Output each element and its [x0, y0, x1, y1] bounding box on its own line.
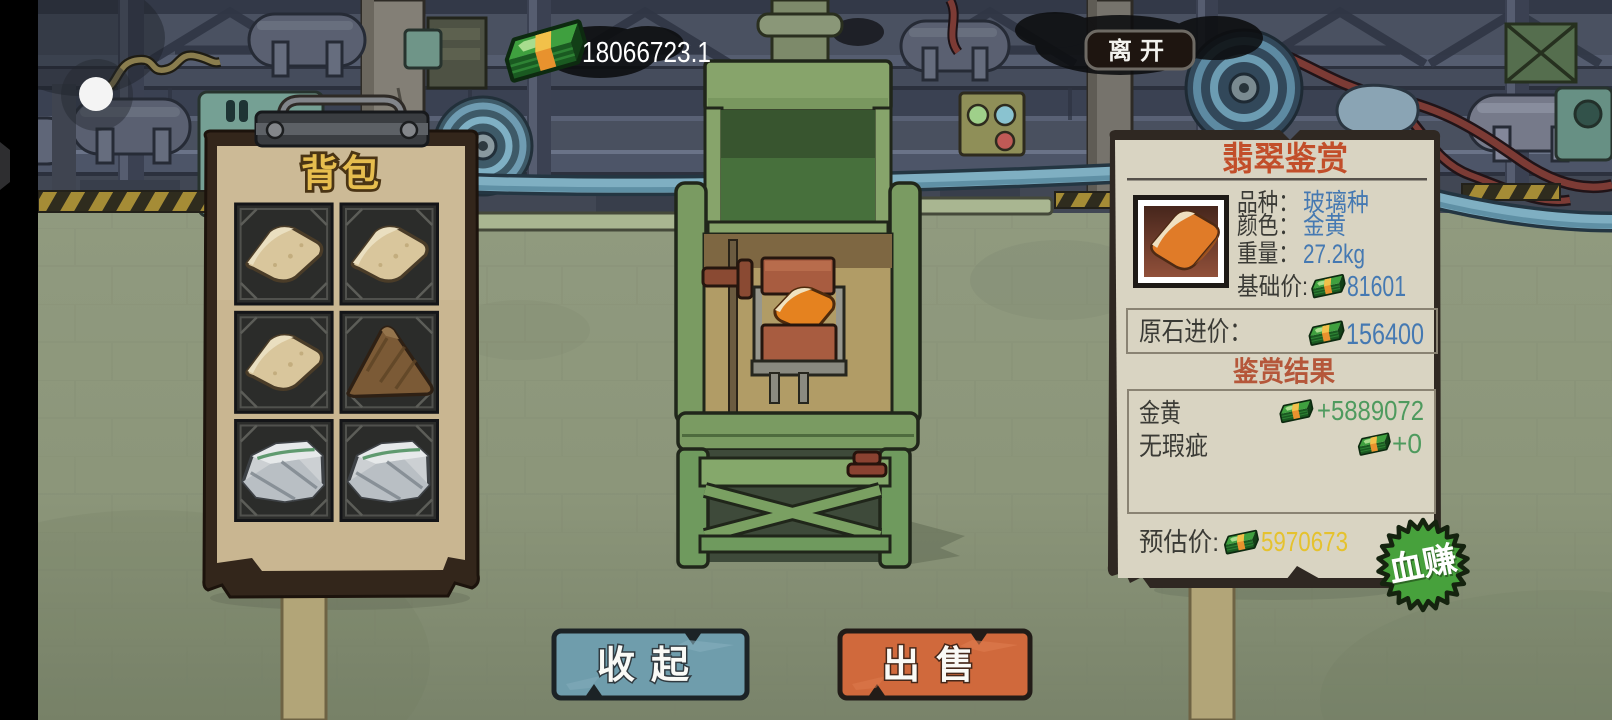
svg-text:18066723.1: 18066723.1: [582, 37, 711, 69]
svg-text:无瑕疵: 无瑕疵: [1139, 431, 1208, 461]
svg-text:重量：: 重量：: [1237, 240, 1299, 268]
svg-text:+5889072: +5889072: [1317, 395, 1424, 426]
svg-text:翡翠鉴赏: 翡翠鉴赏: [1222, 140, 1348, 177]
svg-text:81601: 81601: [1347, 271, 1406, 303]
svg-text:原石进价：: 原石进价：: [1139, 317, 1252, 347]
svg-text:基础价:: 基础价:: [1237, 273, 1308, 301]
svg-text:颜色：: 颜色：: [1237, 212, 1299, 240]
svg-text:收起: 收起: [597, 645, 705, 687]
svg-text:预估价:: 预估价:: [1139, 527, 1219, 557]
svg-text:鉴赏结果: 鉴赏结果: [1232, 355, 1335, 387]
svg-text:金黄: 金黄: [1139, 398, 1181, 428]
svg-text:156400: 156400: [1346, 318, 1424, 351]
svg-text:金黄: 金黄: [1303, 212, 1346, 240]
svg-text:出售: 出售: [882, 645, 990, 687]
svg-text:背包: 背包: [301, 153, 383, 194]
svg-text:+0: +0: [1392, 428, 1422, 459]
svg-text:27.2kg: 27.2kg: [1303, 239, 1365, 269]
svg-text:5970673: 5970673: [1261, 526, 1348, 557]
svg-text:离开: 离开: [1108, 37, 1172, 65]
